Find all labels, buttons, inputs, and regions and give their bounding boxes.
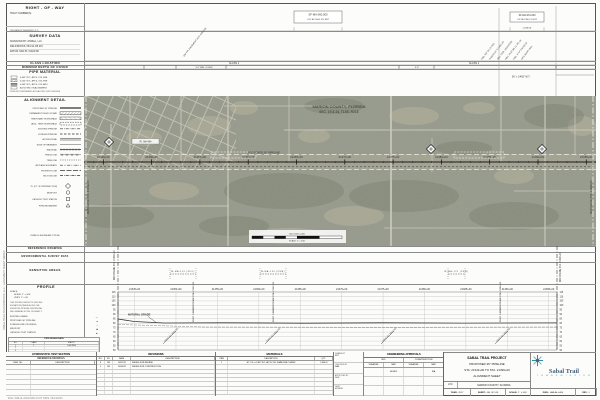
diag-note: PROP. 36" PIPELINE [164, 327, 179, 342]
info-label: YEAR: [451, 392, 458, 394]
cell [216, 382, 228, 385]
pipe-material-note: * DOES NOT REPRESENT ACTUAL PIPE JOINT L… [9, 91, 60, 93]
elev-label-left: 105 [112, 301, 117, 303]
profile-legend-label: CATHODIC TEST STATION [10, 332, 36, 334]
table-row [364, 377, 444, 386]
cell [315, 382, 333, 385]
project-desc: PROPOSED 36" PIPELINE [444, 362, 530, 366]
elev-label-left: 110 [112, 296, 116, 298]
elev-label-left: 80 [113, 323, 116, 325]
elev-label-left: 85 [113, 319, 116, 321]
cell [315, 365, 333, 368]
legend-swatch [60, 122, 81, 125]
logo-box: Sabal Trail T R A N S M I S S I O N [531, 352, 597, 389]
legend-label: ADDL. TEMP. WORKSPACE [31, 123, 57, 126]
cell [105, 370, 113, 373]
legend-label: PIPELINE MARKER [39, 204, 58, 207]
cell: 2 [9, 347, 23, 349]
station-range: STA. 21343+00 TO STA. 21396+00 [444, 368, 530, 372]
scale-bar-numbers: 500 0 500 1,000 [289, 233, 306, 235]
cell [31, 380, 95, 384]
profile-station-label: 21365+00 [295, 288, 307, 291]
station-label: 21385+00 [483, 155, 496, 159]
pipe-right-label: 36" x 0.465" W.T. [512, 76, 531, 79]
cell [131, 391, 215, 394]
elev-label-right: 80 [560, 323, 563, 325]
approvals-main: ENGINEERING APPROVALSBIDCONSTRUCTIONSIGN… [364, 352, 444, 396]
profile-station-label: 21380+00 [419, 288, 431, 291]
legend-label: EXISTING PIPELINE [38, 129, 58, 131]
elev-label-left: 100 [112, 305, 117, 307]
circle-icon [66, 191, 70, 195]
cell [228, 387, 315, 390]
panel-title: SENSITIVE AREAS [6, 268, 84, 272]
loc-label: LOC: [444, 382, 458, 388]
elev-label-right: 90 [560, 314, 563, 316]
matchline-label: MATCHLINE STA. 21396+00 [589, 180, 593, 214]
legend-label: MILEPOST [47, 192, 58, 194]
cell [97, 370, 105, 373]
cell [364, 368, 384, 376]
square-icon [66, 197, 69, 200]
cell [31, 365, 95, 369]
cell [315, 391, 333, 394]
title-info-cell: SHEET:404 OF 516 [471, 389, 506, 396]
profile-station-label: 21375+00 [377, 288, 389, 291]
cell: 36" O.D. x 0.465" W.T., API 5L X70, DSAW… [228, 361, 315, 364]
profile-station-label: 21350+00 [170, 288, 182, 291]
pipe-swatch [11, 76, 17, 78]
class-note: CLASS 1 [469, 62, 480, 65]
cell [424, 386, 444, 394]
cell [216, 365, 228, 368]
pi-label: P.I. MA-404 [140, 141, 153, 144]
cell [216, 370, 228, 373]
approvals-table: DRAWN BYMJTCHECKED BYRAHAPPROVED BYDLWDA… [333, 352, 443, 396]
elev-label-right: 65 [560, 336, 563, 338]
cell [216, 387, 228, 390]
cell: 0 [97, 361, 105, 364]
stub-value: 09/14/15 [335, 388, 362, 390]
cell [113, 387, 131, 390]
cell [131, 370, 215, 373]
profile-scale: SCALE: [10, 291, 18, 293]
tract-or: O.R. BK 2044, PG 1857 [307, 19, 330, 21]
materials-table: MATERIALSITEMDESCRIPTIONQTY.136" O.D. x … [215, 352, 333, 396]
elev-label-right: 115 [560, 292, 564, 294]
stub-row: CHECKED BYRAH [334, 363, 363, 374]
profile-legend-label: PROPOSED 36" PIPELINE [10, 320, 35, 322]
cell [228, 391, 315, 394]
cell [315, 374, 333, 377]
panel-title: ENVIRONMENTAL SURVEY DATA [6, 255, 84, 258]
stub-value: RAH [335, 366, 362, 368]
col-header: QTY. [315, 357, 333, 360]
profile-legend-label: EXISTING GRADE [10, 316, 28, 318]
leader-line [148, 317, 156, 323]
elev-label-left: 90 [113, 314, 116, 316]
cell: JM [105, 365, 113, 368]
cell [105, 391, 113, 394]
brand-name: Sabal Trail [531, 368, 597, 375]
elev-label-right: 60 [560, 341, 563, 343]
elev-label-right: 105 [560, 301, 565, 303]
station-label: 21355+00 [194, 155, 207, 159]
cell [404, 377, 424, 385]
cell: ISSUED FOR CONSTRUCTION [131, 365, 215, 368]
cell: ISSUED FOR REVIEW [131, 361, 215, 364]
depth-label: 4'-0" [415, 67, 419, 69]
col-header: SIGNATURE [404, 363, 424, 367]
row-dimension: 1,318.50' [523, 28, 533, 30]
scale-bar-caption: SCALE: 1" = 500' [289, 240, 306, 243]
cell [228, 374, 315, 377]
cell: 1 [216, 361, 228, 364]
cell [228, 378, 315, 381]
col-header: BY [105, 357, 113, 360]
col-header: DESCRIPTION [131, 357, 215, 360]
group-header: CONSTRUCTION [404, 358, 444, 362]
legend-label: FENCE LINE [45, 155, 57, 157]
natural-grade-line [118, 319, 557, 323]
brand-sub: T R A N S M I S S I O N [531, 375, 597, 377]
elev-label-left: 115 [112, 292, 116, 294]
svg-shape [275, 236, 286, 239]
station-label: 21350+00 [145, 155, 158, 159]
drawing-sheet: SABAL TRAIL TRANSMISSION, LLC - ALIGNMEN… [0, 0, 600, 400]
col-header: ITEM [216, 357, 228, 360]
cell [31, 390, 95, 394]
diag-note: PROP. 36" PIPELINE [496, 327, 511, 342]
legend-label: P.I. (PT. OF INTERSECTION) [31, 186, 58, 188]
crossing-note: EXIST. UNPAVED ROAD STA. 21362+00 [272, 281, 275, 322]
panel-title: PROFILE [6, 285, 86, 289]
cell [131, 387, 215, 390]
col-header: CLASS [23, 342, 45, 344]
cell [105, 387, 113, 390]
cell [228, 382, 315, 385]
info-label: REV: [582, 392, 587, 394]
title-info-row: YEAR:2017SHEET:404 OF 516SCALE:1" = 500'… [444, 389, 597, 396]
section-label: SEC. 19 & 24, T15S, R21E [319, 110, 360, 114]
cell [105, 382, 113, 385]
cell [97, 378, 105, 381]
cell [6, 365, 31, 369]
title-info-cell: SCALE:1" = 500' [506, 389, 531, 396]
elev-label-left: 95 [113, 310, 116, 312]
table-row [216, 391, 333, 395]
legend-label: TEMPORARY WORKSPACE [31, 117, 58, 120]
cell [424, 377, 444, 385]
matchline-label: MATCHLINE STA. 21343+00 [86, 180, 90, 214]
diamond-icon [65, 183, 70, 188]
cell [97, 391, 105, 394]
info-value: 1" = 500' [518, 392, 527, 394]
info-label: SHEET: [478, 392, 486, 394]
cell [105, 378, 113, 381]
cell [23, 347, 45, 349]
cell [384, 377, 404, 385]
stub-value: DLW [335, 377, 362, 379]
project-name: SABAL TRAIL PROJECT [444, 356, 530, 360]
panel-title: ALIGNMENT DETAIL [6, 98, 84, 102]
cell [105, 374, 113, 377]
station-label: 21345+00 [97, 155, 110, 159]
cell [31, 375, 95, 379]
legend-swatch [60, 117, 81, 120]
svg-shape [252, 236, 263, 239]
profile-note-line: SEE GENERAL NOTES ON SHEET 1. [10, 311, 43, 314]
profile-chart: W-MA-119 (PFO)W-MA-120 (PEM)W-MA-121 (PE… [84, 246, 596, 352]
info-value: SAB-AL-0404 [550, 392, 563, 394]
pipe-swatch [11, 87, 17, 89]
survey-data-panel: SURVEY DATA SURVEYED BY: ATWELL, LLCFIEL… [6, 31, 84, 61]
station-label: 21365+00 [290, 155, 303, 159]
cell [113, 370, 131, 373]
revisions-table: REVISIONSNO.BYDATEDESCRIPTION0JM04/17/15… [96, 352, 215, 396]
elev-label-right: 55 [560, 345, 563, 347]
profile-legend-label: MILEPOST [10, 328, 21, 330]
triangle-icon [66, 204, 70, 207]
cell [315, 387, 333, 390]
station-label: 21395+00 [580, 155, 593, 159]
profile-station-label: 21360+00 [253, 288, 265, 291]
elev-label-left: 70 [113, 332, 116, 334]
cell [404, 386, 424, 394]
scale-bar: 500 0 500 1,000SCALE: 1" = 500' [249, 230, 346, 243]
table-row: 09/14/15N/A [364, 368, 444, 377]
aerial-map: 21345+0021350+0021355+0021360+0021365+00… [84, 96, 596, 246]
elev-label-right: 70 [560, 332, 563, 334]
info-value: 2017 [458, 392, 463, 394]
pipe-row-label: 0.540" W.T., API 5L X70, FBE [20, 80, 48, 83]
hydro-test-table: HYDROSTATIC TEST SECTIONREFERENCE DRAWIN… [6, 352, 96, 396]
pipe-row-label: 0.465" W.T., API 5L X70, FBE [20, 76, 48, 79]
station-label: 21375+00 [387, 155, 400, 159]
profile-station-label: 21355+00 [212, 288, 224, 291]
elev-label-right: 75 [560, 327, 563, 329]
col-header: DATE [384, 363, 404, 367]
legend-label: PROPOSED 36" PIPELINE [33, 108, 58, 110]
profile-notes: THIS PROFILE REFLECTS GROUNDELEVATIONS T… [10, 302, 43, 314]
legend-label: RAILROAD [47, 149, 58, 152]
cell [364, 377, 384, 385]
col-header: DATE [424, 363, 444, 367]
profile-station-label: 21385+00 [460, 288, 472, 291]
cell [404, 368, 424, 376]
diag-note: PROP. 36" PIPELINE [266, 327, 281, 342]
station-label: 21360+00 [242, 155, 255, 159]
svg-shape [65, 183, 70, 188]
col-header: NO. [9, 342, 23, 344]
legend-label: SECTION LINE [43, 176, 58, 178]
sensitive-areas-panel: SENSITIVE AREAS [6, 262, 84, 284]
col-header: DESCRIPTION [31, 361, 95, 364]
depth-label: 3'-0" MIN. COVER [195, 67, 213, 69]
cell [6, 385, 31, 389]
cell [6, 375, 31, 379]
cell [364, 386, 384, 394]
natural-grade-label: NATURAL GRADE [128, 313, 151, 317]
survey-row: DATUM: NAD 83 / NAVD 88 [10, 50, 80, 55]
title-block: SABAL TRAIL PROJECT PROPOSED 36" PIPELIN… [443, 352, 596, 396]
legend-label: TREE LINE [47, 160, 58, 162]
cell [315, 370, 333, 373]
col-header: DATE [113, 357, 131, 360]
sensitive-label: W-MA-119 (PFO) [171, 270, 195, 273]
proposed-pipe-line [118, 325, 557, 328]
pipe-swatch [11, 80, 17, 82]
table-row [6, 390, 96, 395]
profile-scale-h: HORIZ: 1" = 500' [14, 294, 31, 296]
cell: 1 [9, 345, 23, 347]
cell: 09/14/15 [384, 368, 404, 376]
cell [6, 370, 31, 374]
cell: 04/17/15 [113, 361, 131, 364]
table-row [97, 391, 215, 395]
tract-number: SF-MA-061.000 [519, 14, 537, 17]
cell [97, 382, 105, 385]
alignment-detail-panel: ALIGNMENT DETAIL PROPOSED 36" PIPELINEPE… [6, 96, 84, 246]
alignment-detail-legend: PROPOSED 36" PIPELINEPERMANENT RIGHT-OF-… [6, 104, 84, 244]
stub-value: MJT [335, 355, 362, 357]
sheet-type: ALIGNMENT SHEET [444, 374, 530, 378]
cell [6, 380, 31, 384]
profile-station-label: 21395+00 [543, 288, 555, 291]
group-header: BID [364, 358, 404, 362]
approvals-stub: DRAWN BYMJTCHECKED BYRAHAPPROVED BYDLWDA… [334, 352, 364, 396]
panel-title: SURVEY DATA [6, 33, 84, 38]
legend-label: EDGE OF PAVEMENT [37, 143, 58, 146]
pipeline-label: PROPOSED 36" PIPELINE [248, 150, 280, 154]
title-info-cell: YEAR:2017 [444, 389, 471, 396]
cell [228, 370, 315, 373]
cell [315, 378, 333, 381]
title-info-cell: DWG:SAB-AL-0404 [531, 389, 576, 396]
project-box: SABAL TRAIL PROJECT PROPOSED 36" PIPELIN… [444, 352, 531, 382]
tract-numbers-label: TRACT NUMBER(S) [10, 13, 31, 15]
pipe-row-label: AS NOTED ON ALIGNMENT [20, 87, 48, 90]
cell: N/A [424, 368, 444, 376]
stub-row: DATE09/14/15 [334, 385, 363, 396]
location-row: LOC: MARION COUNTY, FLORIDA [444, 382, 531, 389]
survey-note: 100' FPL EASEMENT (O.R. 845/123) [182, 27, 207, 58]
photo-texture [84, 96, 596, 246]
cell [97, 387, 105, 390]
elev-label-left: 75 [113, 327, 116, 329]
cell [216, 374, 228, 377]
elev-label-right: 95 [560, 310, 563, 312]
cell [6, 390, 31, 394]
stub-row: APPROVED BYDLW [334, 374, 363, 385]
cell [113, 382, 131, 385]
title-info-cell: REV:1 [576, 389, 597, 396]
cell [384, 386, 404, 394]
survey-rows: SURVEYED BY: ATWELL, LLCFIELD BOOKS: FB … [10, 40, 80, 55]
profile-station-label: 21370+00 [336, 288, 348, 291]
right-of-way-panel: RIGHT - OF - WAY TRACT NUMBER(S) PERMANE… [6, 3, 84, 31]
legend-label: WETLAND BOUNDARY [35, 164, 57, 167]
cell [113, 391, 131, 394]
elev-label-left: 55 [113, 345, 116, 347]
info-label: SCALE: [509, 392, 517, 394]
cell [113, 374, 131, 377]
legend-label: PERMANENT RIGHT-OF-WAY [29, 112, 57, 115]
col-header: DESCRIPTION [228, 357, 315, 360]
profile-station-label: 21390+00 [502, 288, 514, 291]
panel-title: PIPE MATERIAL [6, 70, 84, 74]
panel-title: REFERENCE DRAWING [6, 247, 84, 250]
profile-scale-v: VERT: 1" = 50' [14, 297, 28, 299]
matchline-label: MATCHLINE STA. 21396+00 [559, 252, 562, 282]
col-header: DWG. NO. [6, 361, 31, 364]
cell: 1 [23, 345, 45, 347]
cell [131, 374, 215, 377]
legend-label: ACCESS ROAD [42, 138, 57, 141]
legend-label: CATHODIC TEST STATION [32, 198, 57, 201]
cell [31, 370, 95, 374]
stub-row: DRAWN BYMJT [334, 352, 363, 363]
cell [216, 378, 228, 381]
tract-or: O.R. BK 1980, PG 0112 [517, 19, 537, 21]
legend-swatch [60, 112, 81, 115]
elev-label-right: 110 [560, 296, 564, 298]
cell [216, 391, 228, 394]
cell: 5,300 LF [315, 361, 333, 364]
plot-note: FILE: SAB-AL-0404.DWG PLOT DATE: 09/14/2… [8, 397, 63, 400]
legend-note: SYMBOLS SHOWN ARE TYPICAL [30, 234, 60, 237]
info-label: DWG: [543, 392, 549, 394]
cell [97, 374, 105, 377]
station-label: 21370+00 [339, 155, 352, 159]
station-label: 21390+00 [532, 155, 545, 159]
cell: JM [105, 361, 113, 364]
profile-station-label: 21345+00 [129, 288, 141, 291]
table-row [364, 386, 444, 395]
profile-legend-label: FOREIGN LINE CROSSING [10, 324, 36, 326]
header-bands: SF-MA-060.000O.R. BK 2044, PG 1857SF-MA-… [84, 3, 596, 96]
pipe-material-panel: PIPE MATERIAL 0.465" W.T., API 5L X70, F… [6, 69, 84, 96]
cell [228, 365, 315, 368]
crossing-note: EXIST. UNPAVED ROAD STA. 21389+00 [499, 281, 502, 322]
cell [113, 378, 131, 381]
elev-label-right: 85 [560, 319, 563, 321]
survey-note: FND. 5/8" IR LS 7011 [481, 42, 496, 60]
sensitive-label: W-MA-120 (PEM) [261, 270, 285, 273]
info-value: 1 [588, 392, 589, 394]
info-value: 404 OF 516 [487, 392, 499, 394]
cell [131, 382, 215, 385]
legend-label: PROPERTY LINE [41, 170, 58, 172]
loc-value: MARION COUNTY, FLORIDA [458, 382, 530, 388]
pipe-row-label: 0.640" W.T., API 5L X70, ARO [20, 83, 48, 86]
panel-title: RIGHT - OF - WAY [6, 5, 84, 10]
cell: 09/14/15 [113, 365, 131, 368]
tract-number: SF-MA-060.000 [309, 13, 328, 17]
class-note: CLASS 1 [229, 62, 240, 65]
pipe-swatch [11, 83, 17, 85]
svg-shape [297, 236, 320, 239]
cell: 1 [97, 365, 105, 368]
elev-label-right: 100 [560, 305, 565, 307]
cell [31, 385, 95, 389]
station-label: 21380+00 [435, 155, 448, 159]
elev-label-left: 60 [113, 341, 116, 343]
cell [131, 378, 215, 381]
diag-note: PROP. 36" PIPELINE [382, 327, 397, 342]
legend-label: FOREIGN PIPELINE [38, 134, 57, 136]
crossing-note: EXIST. UNPAVED ROAD STA. 21352+00 [192, 281, 195, 322]
